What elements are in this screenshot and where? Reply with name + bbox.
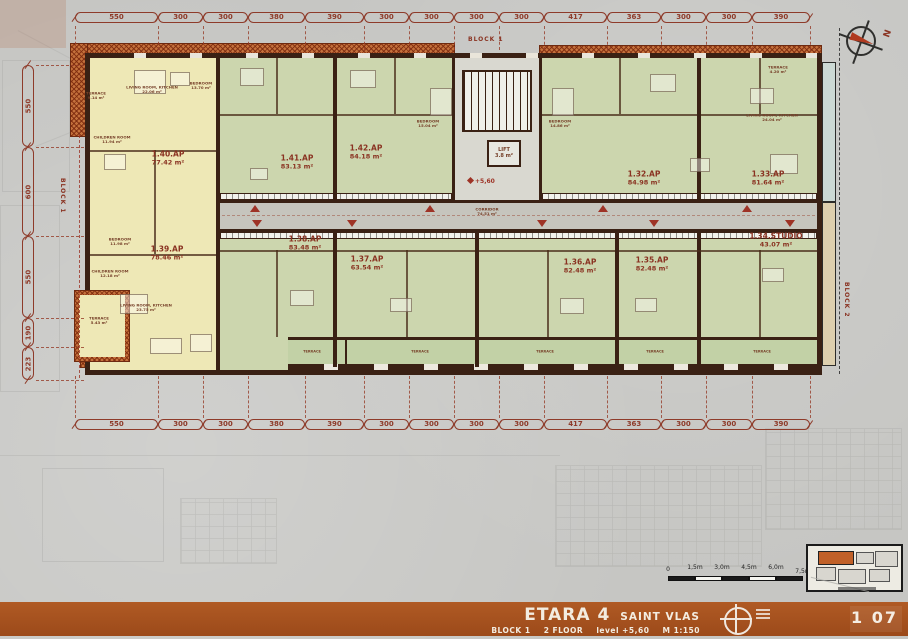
extension-line — [248, 376, 249, 418]
dimension-left: 600 — [22, 147, 34, 236]
extension-line — [499, 376, 500, 418]
scale-label: 0 — [666, 566, 670, 573]
extension-line — [364, 26, 365, 50]
extension-line — [752, 26, 753, 50]
dimension-top: 380 — [248, 12, 305, 23]
dimension-top: 550 — [75, 12, 158, 23]
dimension-bottom: 300 — [364, 419, 409, 430]
terrace-label: TERRACE — [411, 350, 429, 354]
extension-line — [305, 376, 306, 418]
scale-bar-segment — [776, 576, 803, 581]
dimension-bottom: 380 — [248, 419, 305, 430]
apartment-area: 83.13 m² — [281, 163, 314, 171]
title-floor: 2 FLOOR — [544, 626, 584, 635]
apartment-area: 63.54 m² — [351, 264, 384, 272]
key-plan-caption — [838, 587, 876, 590]
furniture — [560, 298, 584, 314]
apartment-area: 83.48 m² — [289, 244, 322, 252]
corridor-area: 74.51 m² — [477, 212, 496, 217]
apartment-label: 1.33.AP81.64 m² — [752, 170, 785, 187]
key-plan-highlighted-block — [818, 551, 854, 565]
room-label: BEDROOM13.70 m² — [190, 81, 212, 90]
extension-line — [409, 26, 410, 50]
dimension-top: 300 — [499, 12, 544, 23]
extension-line — [203, 376, 204, 418]
apartment-label: 1.35.AP82.48 m² — [636, 256, 669, 273]
extension-line — [661, 26, 662, 50]
dimension-top: 300 — [203, 12, 248, 23]
apartment-id: 1.42.AP — [350, 144, 383, 153]
apartment-area: 77.42 m² — [152, 159, 185, 167]
room-label: LIVING ROOM, KITCHEN24.04 m² — [746, 113, 798, 122]
apartment-area: 82.48 m² — [564, 267, 597, 275]
location-title: SAINT VLAS — [620, 611, 700, 623]
extension-line — [706, 376, 707, 418]
dimension-bottom: 300 — [158, 419, 203, 430]
terrace-label: TERRACE — [646, 350, 664, 354]
extension-line — [544, 376, 545, 418]
dimension-top: 300 — [364, 12, 409, 23]
company-logo-icon — [735, 604, 737, 634]
room-label: TERRACE4.20 m² — [768, 65, 788, 74]
furniture — [350, 70, 376, 88]
extension-line — [203, 26, 204, 50]
apartment-area: 78.46 m² — [151, 254, 184, 262]
extension-line — [36, 147, 84, 148]
apartment-label: 1.37.AP63.54 m² — [351, 255, 384, 272]
furniture — [240, 68, 264, 86]
title-text: ETARA 4SAINT VLAS BLOCK 1 2 FLOOR level … — [491, 605, 700, 635]
apartment-id: 1.36.AP — [564, 258, 597, 267]
extension-line — [409, 376, 410, 418]
dimension-bottom: 363 — [607, 419, 661, 430]
entry-arrow-down-icon — [537, 220, 547, 227]
dimension-top: 300 — [706, 12, 752, 23]
dimension-top: 300 — [409, 12, 454, 23]
extension-line — [544, 26, 545, 50]
dimension-left: 223 — [22, 347, 34, 380]
key-plan-building — [875, 551, 898, 567]
room-label: BEDROOM15.04 m² — [417, 119, 439, 128]
extension-line — [706, 26, 707, 50]
entry-arrow-down-icon — [649, 220, 659, 227]
company-logo-icon — [724, 607, 752, 635]
dimension-top: 300 — [158, 12, 203, 23]
extension-line — [454, 26, 455, 50]
room-label: LIVING ROOM, KITCHEN23.75 m² — [120, 303, 172, 312]
title-scale: M 1:150 — [663, 626, 700, 635]
logo-caption — [756, 609, 770, 611]
furniture — [650, 74, 676, 92]
title-level: level +5,60 — [596, 626, 649, 635]
apartment-area: 43.07 m² — [749, 241, 802, 249]
extension-line — [810, 26, 811, 50]
scale-label: 6,0m — [768, 564, 783, 571]
apartment-area: 84.18 m² — [350, 153, 383, 161]
dimension-bottom: 300 — [409, 419, 454, 430]
room-label: TERRACE9.14 m² — [86, 91, 106, 100]
key-plan — [806, 544, 903, 592]
entry-arrow-up-icon — [250, 205, 260, 212]
extension-line — [454, 376, 455, 418]
dimension-bottom: 390 — [752, 419, 810, 430]
entry-arrow-down-icon — [347, 220, 357, 227]
apartment-id: 1.34.STUDIO — [749, 232, 802, 241]
dimension-top: 390 — [305, 12, 364, 23]
apartment-label: 1.34.STUDIO43.07 m² — [749, 232, 802, 249]
dimension-bottom: 417 — [544, 419, 607, 430]
dimension-top: 363 — [607, 12, 661, 23]
logo-caption — [756, 613, 770, 615]
extension-line — [158, 376, 159, 418]
apartment-id: 1.41.AP — [281, 154, 314, 163]
key-plan-building — [869, 569, 890, 582]
extension-line — [75, 376, 76, 418]
annotation-layer: 5503003003803903003003003004173633003003… — [0, 0, 908, 639]
entry-arrow-down-icon — [785, 220, 795, 227]
dimension-top: 300 — [661, 12, 706, 23]
apartment-label: 1.41.AP83.13 m² — [281, 154, 314, 171]
furniture — [762, 268, 784, 282]
dimension-top: 300 — [454, 12, 499, 23]
scale-bar-segment — [695, 576, 722, 581]
scale-bar-segment — [722, 576, 749, 581]
furniture — [190, 334, 212, 352]
extension-line — [364, 376, 365, 418]
furniture — [104, 154, 126, 170]
extension-line — [499, 26, 500, 50]
extension-line — [158, 26, 159, 50]
scale-bar-segment — [668, 576, 695, 581]
dimension-bottom: 300 — [203, 419, 248, 430]
dimension-top: 417 — [544, 12, 607, 23]
room-label: CHILDREN ROOM11.94 m² — [93, 135, 130, 144]
dimension-left: 550 — [22, 236, 34, 318]
furniture — [390, 298, 412, 312]
apartment-id: 1.39.AP — [151, 245, 184, 254]
extension-line — [36, 380, 84, 381]
extension-line — [752, 376, 753, 418]
title-bar: ETARA 4SAINT VLAS BLOCK 1 2 FLOOR level … — [0, 602, 908, 636]
apartment-label: 1.32.AP84.98 m² — [628, 170, 661, 187]
key-plan-building — [856, 552, 874, 564]
sheet-number: 1 07 — [851, 608, 898, 627]
corridor-label: CORRIDOR 74.51 m² — [475, 207, 498, 216]
title-block-name: BLOCK 1 — [491, 626, 530, 635]
dimension-left: 550 — [22, 65, 34, 147]
apartment-id: 1.33.AP — [752, 170, 785, 179]
apartment-label: 1.40.AP77.42 m² — [152, 150, 185, 167]
room-label: TERRACE5.43 m² — [89, 316, 109, 325]
terrace-label: TERRACE — [536, 350, 554, 354]
apartment-area: 84.98 m² — [628, 179, 661, 187]
extension-line — [36, 347, 84, 348]
furniture — [750, 88, 774, 104]
dimension-bottom: 300 — [706, 419, 752, 430]
room-label: BEDROOM14.86 m² — [549, 119, 571, 128]
room-label: BEDROOM11.98 m² — [109, 237, 131, 246]
dimension-bottom: 550 — [75, 419, 158, 430]
scale-label: 1,5m — [687, 564, 702, 571]
extension-line — [36, 236, 84, 237]
apartment-label: 1.36.AP82.48 m² — [564, 258, 597, 275]
dimension-top: 390 — [752, 12, 810, 23]
room-label: LIVING ROOM, KITCHEN22.06 m² — [126, 85, 178, 94]
extension-line — [810, 376, 811, 418]
extension-line — [607, 376, 608, 418]
extension-line — [36, 65, 84, 66]
scale-bar-segment — [749, 576, 776, 581]
extension-line — [607, 26, 608, 50]
apartment-area: 81.64 m² — [752, 179, 785, 187]
entry-arrow-up-icon — [425, 205, 435, 212]
terrace-label: TERRACE — [753, 350, 771, 354]
furniture — [250, 168, 268, 180]
furniture — [690, 158, 710, 172]
dimension-left: 190 — [22, 318, 34, 347]
furniture — [635, 298, 657, 312]
dimension-bottom: 300 — [661, 419, 706, 430]
extension-line — [36, 318, 84, 319]
key-plan-building — [838, 569, 866, 584]
project-title: ETARA 4 — [524, 605, 610, 625]
drawing-sheet: LIFT 3.8 m² CORRIDOR 7 — [0, 0, 908, 639]
apartment-id: 1.37.AP — [351, 255, 384, 264]
dimension-bottom: 300 — [454, 419, 499, 430]
extension-line — [305, 26, 306, 50]
dimension-bottom: 300 — [499, 419, 544, 430]
apartment-label: 1.38.AP83.48 m² — [289, 235, 322, 252]
extension-line — [75, 26, 76, 50]
extension-line — [661, 376, 662, 418]
extension-line — [248, 26, 249, 50]
furniture — [170, 72, 190, 86]
entry-arrow-up-icon — [598, 205, 608, 212]
terrace-label: TERRACE — [303, 350, 321, 354]
furniture — [150, 338, 182, 354]
furniture — [290, 290, 314, 306]
apartment-id: 1.40.AP — [152, 150, 185, 159]
furniture — [552, 88, 574, 116]
apartment-id: 1.32.AP — [628, 170, 661, 179]
dimension-bottom: 390 — [305, 419, 364, 430]
scale-label: 4,5m — [741, 564, 756, 571]
furniture — [430, 88, 452, 116]
room-label: CHILDREN ROOM12.18 m² — [91, 269, 128, 278]
logo-caption — [756, 617, 770, 619]
apartment-area: 82.48 m² — [636, 265, 669, 273]
scale-label: 3,0m — [714, 564, 729, 571]
apartment-label: 1.42.AP84.18 m² — [350, 144, 383, 161]
apartment-id: 1.38.AP — [289, 235, 322, 244]
apartment-label: 1.39.AP78.46 m² — [151, 245, 184, 262]
entry-arrow-down-icon — [252, 220, 262, 227]
entry-arrow-up-icon — [742, 205, 752, 212]
apartment-id: 1.35.AP — [636, 256, 669, 265]
